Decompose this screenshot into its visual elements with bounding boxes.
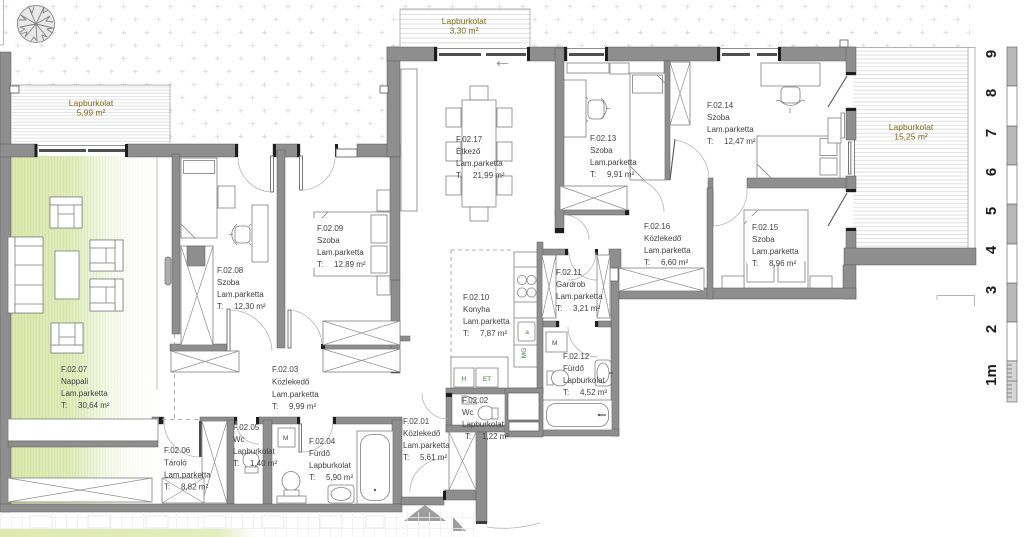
svg-text:T:: T: [644, 258, 650, 267]
svg-text:F.02.04: F.02.04 [309, 437, 336, 446]
svg-text:F.02.14: F.02.14 [707, 101, 734, 110]
svg-text:F.02.01: F.02.01 [403, 417, 430, 426]
svg-text:T:: T: [164, 483, 170, 492]
svg-text:Konyha: Konyha [463, 305, 491, 314]
svg-text:T:: T: [463, 329, 469, 338]
svg-text:4,52 m²: 4,52 m² [580, 388, 607, 397]
svg-text:T:: T: [563, 388, 569, 397]
svg-text:F.02.16: F.02.16 [644, 222, 671, 231]
svg-text:Lapburkolat: Lapburkolat [462, 420, 505, 429]
svg-text:T:: T: [233, 459, 239, 468]
svg-text:Lam.parketta: Lam.parketta [556, 292, 603, 301]
svg-text:Szoba: Szoba [590, 146, 613, 155]
svg-text:T:: T: [590, 170, 596, 179]
svg-text:Lapburkolat: Lapburkolat [442, 16, 487, 26]
svg-text:Lam.parketta: Lam.parketta [752, 247, 799, 256]
svg-text:T:: T: [403, 453, 409, 462]
svg-text:M: M [552, 340, 557, 347]
svg-text:12,89 m²: 12,89 m² [334, 260, 366, 269]
svg-text:T:: T: [465, 432, 471, 441]
svg-text:Lam.parketta: Lam.parketta [403, 441, 450, 450]
svg-text:MG: MG [521, 348, 528, 358]
svg-text:Lam.parketta: Lam.parketta [164, 471, 211, 480]
svg-text:F.02.17: F.02.17 [456, 135, 483, 144]
svg-text:F.02.15: F.02.15 [752, 223, 779, 232]
svg-text:Szoba: Szoba [707, 113, 730, 122]
svg-text:4: 4 [983, 245, 1000, 254]
svg-text:Közlekedő: Közlekedő [644, 234, 682, 243]
svg-text:Fürdő: Fürdő [563, 364, 584, 373]
svg-text:Lapburkolat: Lapburkolat [69, 98, 114, 108]
svg-text:8,82 m²: 8,82 m² [181, 483, 208, 492]
svg-text:Nappali: Nappali [61, 377, 88, 386]
svg-text:Tároló: Tároló [164, 459, 187, 468]
svg-text:3: 3 [983, 286, 1000, 294]
svg-text:T:: T: [272, 402, 278, 411]
svg-text:a: a [525, 329, 529, 336]
svg-text:3,30 m²: 3,30 m² [450, 26, 479, 36]
svg-text:F.02.08: F.02.08 [217, 266, 244, 275]
svg-text:5,61 m²: 5,61 m² [420, 453, 447, 462]
svg-text:Wc: Wc [462, 408, 474, 417]
svg-text:H: H [462, 376, 467, 383]
svg-text:F.02.13: F.02.13 [590, 134, 617, 143]
svg-text:Lam.parketta: Lam.parketta [707, 125, 754, 134]
svg-text:8: 8 [983, 89, 1000, 97]
svg-text:Lapburkolat: Lapburkolat [889, 122, 934, 132]
svg-text:T:: T: [556, 304, 562, 313]
svg-text:F.02.11: F.02.11 [556, 268, 582, 277]
svg-text:F.02.02: F.02.02 [462, 396, 489, 405]
svg-text:T:: T: [707, 137, 713, 146]
svg-text:30,64 m²: 30,64 m² [78, 401, 110, 410]
svg-text:6,60 m²: 6,60 m² [661, 258, 688, 267]
svg-text:F.02.03: F.02.03 [272, 365, 299, 374]
svg-text:Lam.parketta: Lam.parketta [317, 248, 364, 257]
svg-text:T:: T: [309, 473, 315, 482]
svg-text:12,47 m²: 12,47 m² [724, 137, 756, 146]
svg-text:Lam.parketta: Lam.parketta [590, 158, 637, 167]
svg-text:Lam.parketta: Lam.parketta [456, 159, 503, 168]
svg-text:Közlekedő: Közlekedő [403, 429, 441, 438]
svg-text:T:: T: [456, 171, 462, 180]
svg-text:Wc: Wc [233, 435, 245, 444]
svg-text:Lam.parketta: Lam.parketta [644, 246, 691, 255]
svg-text:9: 9 [983, 50, 1000, 58]
svg-text:5: 5 [983, 207, 1000, 215]
svg-text:15,25 m²: 15,25 m² [894, 132, 928, 142]
svg-text:21,99 m²: 21,99 m² [473, 171, 505, 180]
svg-text:9,91 m²: 9,91 m² [607, 170, 634, 179]
svg-text:T:: T: [217, 302, 223, 311]
svg-text:Étkező: Étkező [456, 147, 481, 156]
svg-text:F.02.05: F.02.05 [233, 423, 260, 432]
svg-text:F.02.07: F.02.07 [61, 365, 88, 374]
svg-text:T:: T: [61, 401, 67, 410]
svg-text:1m: 1m [983, 364, 1000, 386]
svg-text:Lapburkolat: Lapburkolat [309, 461, 352, 470]
svg-text:T:: T: [317, 260, 323, 269]
svg-text:F.02.06: F.02.06 [164, 446, 191, 455]
svg-text:Gardrob: Gardrob [556, 280, 586, 289]
svg-text:F.02.10: F.02.10 [463, 293, 490, 302]
svg-text:Szoba: Szoba [317, 236, 340, 245]
svg-text:Fürdő: Fürdő [309, 449, 330, 458]
svg-text:5,99 m²: 5,99 m² [77, 108, 106, 118]
svg-text:F.02.09: F.02.09 [317, 224, 344, 233]
svg-text:Lapburkolat: Lapburkolat [233, 447, 276, 456]
svg-text:1,22 m²: 1,22 m² [482, 432, 509, 441]
svg-text:3,21 m²: 3,21 m² [573, 304, 600, 313]
svg-text:9,99 m²: 9,99 m² [289, 402, 316, 411]
svg-text:12,30 m²: 12,30 m² [234, 302, 266, 311]
svg-text:T:: T: [752, 259, 758, 268]
svg-text:F.02.12: F.02.12 [563, 352, 590, 361]
svg-text:Szoba: Szoba [217, 278, 240, 287]
svg-text:Szoba: Szoba [752, 235, 775, 244]
svg-text:8,96 m²: 8,96 m² [769, 259, 796, 268]
svg-text:7,87 m²: 7,87 m² [480, 329, 507, 338]
svg-text:5,90 m²: 5,90 m² [326, 473, 353, 482]
svg-text:Lam.parketta: Lam.parketta [217, 290, 264, 299]
svg-text:2: 2 [983, 325, 1000, 333]
svg-text:1,40 m²: 1,40 m² [250, 459, 277, 468]
svg-text:ET: ET [483, 376, 491, 383]
svg-text:Lam.parketta: Lam.parketta [272, 390, 319, 399]
svg-text:Lam.parketta: Lam.parketta [61, 389, 108, 398]
svg-text:M: M [283, 435, 288, 442]
svg-text:7: 7 [983, 129, 1000, 137]
svg-text:Közlekedő: Közlekedő [272, 378, 310, 387]
svg-text:Lapburkolat: Lapburkolat [563, 376, 606, 385]
svg-text:6: 6 [983, 168, 1000, 176]
svg-text:Lam.parketta: Lam.parketta [463, 317, 510, 326]
